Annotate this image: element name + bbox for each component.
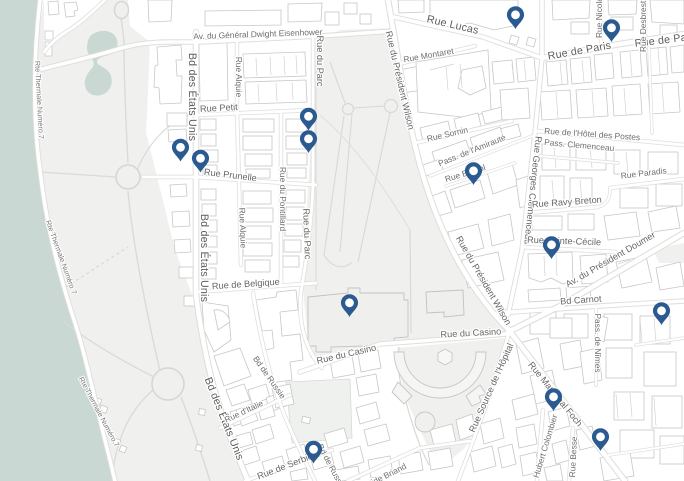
svg-text:Rue du Pontillard: Rue du Pontillard — [278, 167, 288, 232]
svg-text:Rue Nicolas: Rue Nicolas — [594, 0, 604, 38]
svg-text:Pass. de Nîmes: Pass. de Nîmes — [593, 313, 603, 372]
svg-text:Bd des États Unis: Bd des États Unis — [198, 214, 211, 302]
svg-text:Rue du Parc: Rue du Parc — [315, 35, 325, 86]
svg-text:Bd des États Unis: Bd des États Unis — [186, 53, 199, 141]
svg-text:Rue Desbrest: Rue Desbrest — [638, 0, 648, 52]
svg-text:Rue Alquie: Rue Alquie — [237, 207, 248, 248]
svg-text:Rue Alquie: Rue Alquie — [234, 57, 244, 98]
svg-text:Rue du Parc: Rue du Parc — [301, 208, 313, 260]
svg-text:Rue Petit: Rue Petit — [200, 102, 239, 114]
